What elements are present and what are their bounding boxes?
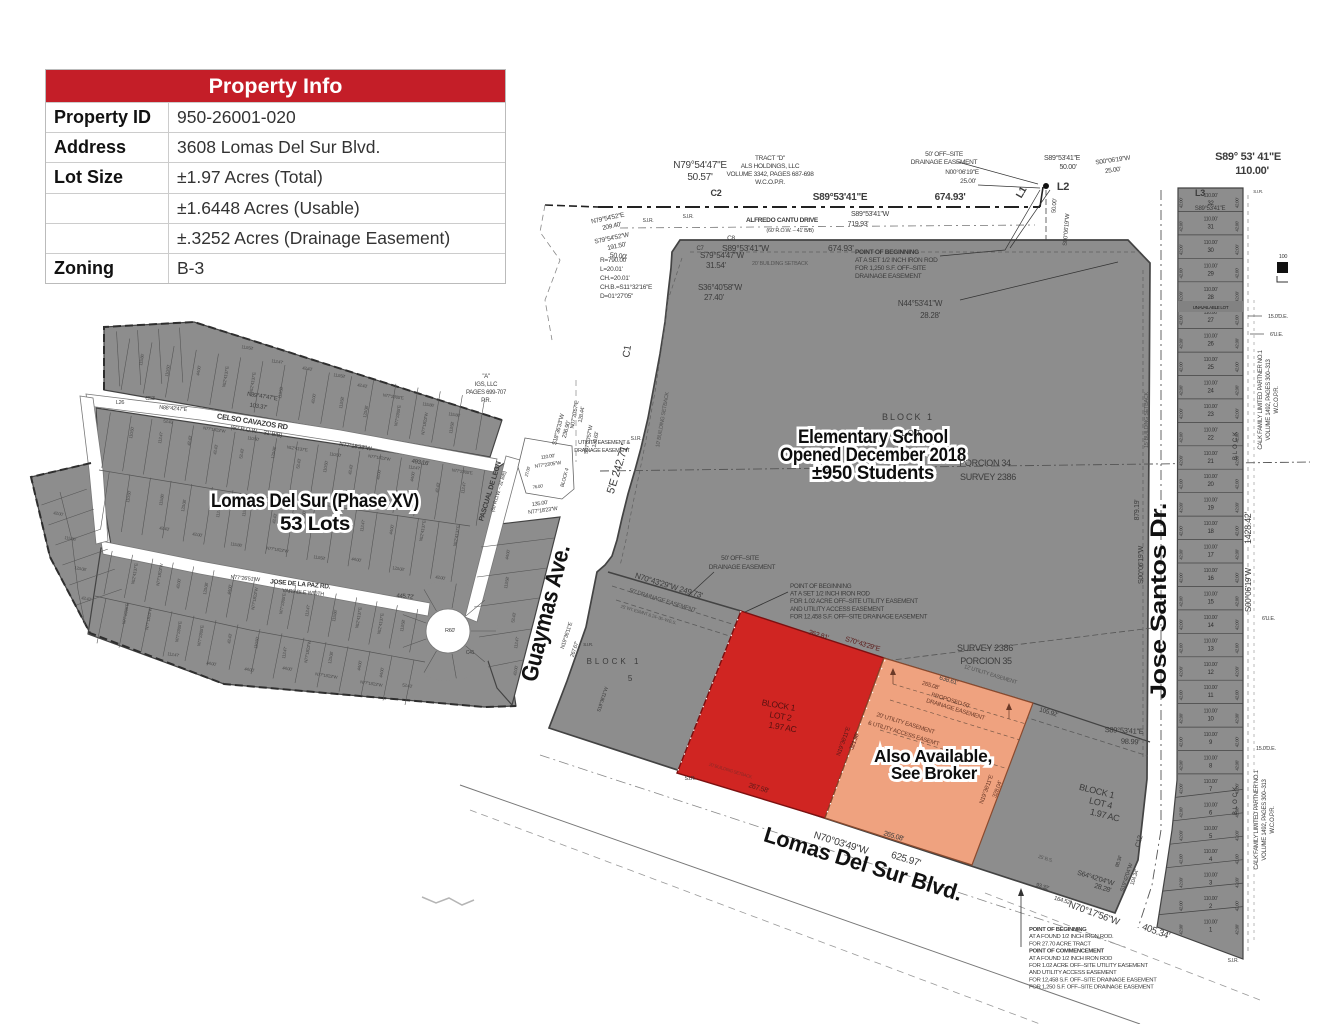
svg-text:24: 24 bbox=[1207, 389, 1214, 395]
svg-text:53 Lots: 53 Lots bbox=[280, 513, 350, 535]
svg-text:N00°06'19"E: N00°06'19"E bbox=[945, 168, 980, 176]
svg-text:Jose Santos Dr.: Jose Santos Dr. bbox=[1146, 503, 1171, 699]
svg-text:BLOCK 1: BLOCK 1 bbox=[587, 657, 642, 666]
svg-text:42.00': 42.00' bbox=[1235, 737, 1240, 748]
svg-text:W.C.O.P.R.: W.C.O.P.R. bbox=[1270, 806, 1276, 834]
svg-text:42.00': 42.00' bbox=[1179, 221, 1184, 232]
svg-text:CALK FAMILY LIMITED PARTNER NO: CALK FAMILY LIMITED PARTNER NO.1 bbox=[1254, 769, 1260, 869]
svg-text:W.C.O.P.R.: W.C.O.P.R. bbox=[755, 179, 785, 186]
svg-text:FOR 12,458 S.F. OFF–SITE DRAIN: FOR 12,458 S.F. OFF–SITE DRAINAGE EASEME… bbox=[790, 613, 928, 620]
svg-text:ALS HOLDINGS, LLC: ALS HOLDINGS, LLC bbox=[741, 163, 800, 170]
svg-text:110.00': 110.00' bbox=[1204, 263, 1218, 269]
svg-text:42.00': 42.00' bbox=[1179, 572, 1184, 583]
svg-text:S89°53'41"E: S89°53'41"E bbox=[1044, 154, 1081, 162]
svg-text:27: 27 bbox=[1207, 318, 1214, 324]
svg-text:42.00': 42.00' bbox=[1235, 197, 1240, 208]
svg-text:TRACT "D": TRACT "D" bbox=[755, 155, 786, 162]
svg-text:S.I.R.: S.I.R. bbox=[1228, 958, 1239, 964]
svg-text:POINT OF BEGINNING: POINT OF BEGINNING bbox=[1029, 927, 1087, 933]
svg-text:23: 23 bbox=[1207, 412, 1214, 418]
svg-text:11: 11 bbox=[1208, 693, 1215, 699]
svg-text:42.00': 42.00' bbox=[1179, 713, 1184, 724]
svg-text:FOR 12,458 S.F. OFF–SITE DRAIN: FOR 12,458 S.F. OFF–SITE DRAINAGE EASEME… bbox=[1029, 977, 1157, 983]
svg-text:110.00': 110.00' bbox=[1204, 568, 1218, 574]
svg-text:110.00': 110.00' bbox=[1204, 451, 1218, 457]
svg-text:17: 17 bbox=[1207, 553, 1214, 559]
svg-text:1428.42': 1428.42' bbox=[1243, 511, 1253, 543]
svg-text:C41: C41 bbox=[466, 650, 475, 656]
svg-text:CH.=20.01': CH.=20.01' bbox=[600, 275, 630, 282]
svg-text:S89°53'41"W: S89°53'41"W bbox=[851, 210, 890, 218]
svg-text:VOLUME 1492, PAGES 300–313: VOLUME 1492, PAGES 300–313 bbox=[1266, 358, 1272, 440]
svg-text:FOR 1.02 ACRE OFF–SITE UTILITY: FOR 1.02 ACRE OFF–SITE UTILITY EASEMENT bbox=[790, 598, 918, 605]
svg-text:DRAINAGE EASEMENT: DRAINAGE EASEMENT bbox=[709, 564, 776, 571]
svg-text:42.00': 42.00' bbox=[1179, 783, 1184, 794]
svg-text:18: 18 bbox=[1207, 529, 1214, 535]
svg-text:110.00': 110.00' bbox=[1204, 709, 1218, 715]
svg-text:VOLUME 3342, PAGES 687-698: VOLUME 3342, PAGES 687-698 bbox=[726, 171, 814, 178]
svg-text:110.00': 110.00' bbox=[1204, 240, 1218, 246]
svg-text:VOLUME 1492, PAGES 300–313: VOLUME 1492, PAGES 300–313 bbox=[1262, 778, 1268, 860]
svg-text:20: 20 bbox=[1207, 482, 1214, 488]
svg-text:29: 29 bbox=[1207, 271, 1214, 277]
svg-text:42.00': 42.00' bbox=[1179, 432, 1184, 443]
svg-text:AND UTILITY ACCESS EASEMENT: AND UTILITY ACCESS EASEMENT bbox=[1029, 970, 1117, 976]
svg-text:42.00': 42.00' bbox=[1235, 408, 1240, 419]
svg-text:16: 16 bbox=[1207, 576, 1214, 582]
svg-text:42.00': 42.00' bbox=[1235, 479, 1240, 490]
svg-text:27.40': 27.40' bbox=[704, 293, 725, 302]
svg-text:42.00': 42.00' bbox=[1235, 502, 1240, 513]
svg-text:42.00': 42.00' bbox=[1179, 877, 1184, 888]
svg-text:AT A SET 1/2 INCH IRON ROD: AT A SET 1/2 INCH IRON ROD bbox=[855, 257, 938, 264]
svg-text:110.00': 110.00' bbox=[1204, 685, 1218, 691]
svg-text:See Broker: See Broker bbox=[891, 763, 977, 783]
svg-text:110.00': 110.00' bbox=[1204, 873, 1218, 879]
svg-text:31: 31 bbox=[1207, 224, 1214, 230]
svg-text:C53: C53 bbox=[145, 396, 154, 402]
svg-text:PAGES 699-707: PAGES 699-707 bbox=[466, 390, 507, 396]
svg-text:13: 13 bbox=[1207, 646, 1214, 652]
svg-text:50' OFF–SITE: 50' OFF–SITE bbox=[925, 151, 964, 158]
svg-text:C2: C2 bbox=[711, 188, 722, 198]
svg-text:FOR 1,250 S.F. OFF–SITE DRAINA: FOR 1,250 S.F. OFF–SITE DRAINAGE EASEMEN… bbox=[1029, 985, 1154, 991]
svg-text:42.00': 42.00' bbox=[1179, 291, 1184, 302]
svg-text:42.00': 42.00' bbox=[1179, 526, 1184, 537]
svg-text:S89°53'41"E: S89°53'41"E bbox=[1195, 206, 1226, 212]
svg-text:L26: L26 bbox=[116, 400, 125, 406]
svg-text:42.00': 42.00' bbox=[1235, 549, 1240, 560]
svg-text:FOR 1.02 ACRE OFF–SITE UTILITY: FOR 1.02 ACRE OFF–SITE UTILITY EASEMENT bbox=[1029, 963, 1148, 969]
svg-text:42.00': 42.00' bbox=[1179, 268, 1184, 279]
svg-text:110.00': 110.00' bbox=[1204, 474, 1218, 480]
svg-text:42.00': 42.00' bbox=[1179, 690, 1184, 701]
svg-text:42.00': 42.00' bbox=[1179, 338, 1184, 349]
svg-text:42.00': 42.00' bbox=[1179, 901, 1184, 912]
svg-text:L=20.01': L=20.01' bbox=[600, 266, 623, 273]
svg-text:±950 Students: ±950 Students bbox=[812, 462, 934, 484]
svg-text:AT A FOUND 1/2 INCH IRON ROD: AT A FOUND 1/2 INCH IRON ROD bbox=[1029, 956, 1112, 962]
svg-text:110.00': 110.00' bbox=[1204, 779, 1218, 785]
svg-text:42.00': 42.00' bbox=[1235, 572, 1240, 583]
svg-text:SURVEY 2386: SURVEY 2386 bbox=[960, 472, 1016, 482]
svg-text:AT A SET 1/2 INCH IRON ROD: AT A SET 1/2 INCH IRON ROD bbox=[790, 591, 870, 598]
svg-text:15: 15 bbox=[1207, 599, 1214, 605]
svg-text:42.00': 42.00' bbox=[1235, 760, 1240, 771]
svg-text:674.93': 674.93' bbox=[828, 243, 854, 253]
svg-text:42.00': 42.00' bbox=[1235, 596, 1240, 607]
svg-text:AND UTILITY ACCESS EASEMENT: AND UTILITY ACCESS EASEMENT bbox=[790, 606, 884, 613]
svg-text:6'U.E.: 6'U.E. bbox=[1270, 332, 1284, 338]
svg-text:879.19': 879.19' bbox=[1134, 500, 1141, 521]
svg-text:110.00': 110.00' bbox=[1204, 732, 1218, 738]
svg-text:50.57': 50.57' bbox=[687, 172, 713, 183]
svg-text:(60' R.O.W. – 41' B/B): (60' R.O.W. – 41' B/B) bbox=[766, 228, 814, 234]
svg-text:110.00': 110.00' bbox=[1204, 521, 1218, 527]
svg-text:CH.B.=S11°32'16"E: CH.B.=S11°32'16"E bbox=[600, 283, 653, 291]
svg-text:42.00': 42.00' bbox=[1179, 737, 1184, 748]
svg-text:S00°06'19"W: S00°06'19"W bbox=[1244, 567, 1253, 612]
svg-text:42.00': 42.00' bbox=[1235, 690, 1240, 701]
svg-text:42.00': 42.00' bbox=[1235, 619, 1240, 630]
svg-text:42.00': 42.00' bbox=[1235, 268, 1240, 279]
svg-text:42.00': 42.00' bbox=[1179, 502, 1184, 513]
svg-text:110.00': 110.00' bbox=[1204, 334, 1218, 340]
svg-text:42.00': 42.00' bbox=[1179, 596, 1184, 607]
svg-text:42.00': 42.00' bbox=[1179, 315, 1184, 326]
svg-text:110.00': 110.00' bbox=[1204, 756, 1218, 762]
svg-text:POINT OF COMMENCEMENT: POINT OF COMMENCEMENT bbox=[1029, 949, 1105, 955]
svg-text:42.00': 42.00' bbox=[1179, 197, 1184, 208]
svg-text:110.00': 110.00' bbox=[1204, 920, 1218, 926]
svg-text:42.00': 42.00' bbox=[1235, 643, 1240, 654]
svg-text:S36°40'58"W: S36°40'58"W bbox=[698, 283, 743, 292]
svg-text:42.00': 42.00' bbox=[1235, 830, 1240, 841]
svg-text:98.99': 98.99' bbox=[1121, 737, 1141, 747]
svg-text:110.00': 110.00' bbox=[1204, 802, 1218, 808]
svg-text:POINT OF BEGINNING: POINT OF BEGINNING bbox=[855, 249, 919, 256]
svg-text:42.00': 42.00' bbox=[1179, 924, 1184, 935]
svg-text:42.00': 42.00' bbox=[1179, 244, 1184, 255]
svg-text:110.00': 110.00' bbox=[1204, 216, 1218, 222]
svg-text:42.00': 42.00' bbox=[1179, 760, 1184, 771]
svg-text:42.00': 42.00' bbox=[1179, 455, 1184, 466]
svg-text:42.00': 42.00' bbox=[1179, 385, 1184, 396]
svg-text:S.I.R.: S.I.R. bbox=[683, 214, 694, 220]
svg-text:110.00': 110.00' bbox=[1204, 193, 1218, 199]
svg-text:110.00': 110.00' bbox=[1235, 165, 1269, 177]
svg-text:110.00': 110.00' bbox=[1204, 662, 1218, 668]
svg-text:110.00': 110.00' bbox=[1204, 357, 1218, 363]
svg-text:110.00': 110.00' bbox=[1204, 427, 1218, 433]
svg-text:42.00': 42.00' bbox=[1235, 362, 1240, 373]
svg-text:50' OFF–SITE: 50' OFF–SITE bbox=[721, 555, 760, 562]
svg-text:42.00': 42.00' bbox=[1235, 385, 1240, 396]
svg-text:110.00': 110.00' bbox=[1204, 287, 1218, 293]
svg-text:BLOCK: BLOCK bbox=[1233, 430, 1239, 460]
svg-text:110.00': 110.00' bbox=[1204, 498, 1218, 504]
svg-text:S.I.R.: S.I.R. bbox=[583, 642, 593, 647]
svg-text:N79°54'47"E: N79°54'47"E bbox=[673, 160, 727, 171]
svg-text:FOR 27.70 ACRE TRACT: FOR 27.70 ACRE TRACT bbox=[1029, 941, 1091, 947]
svg-text:26: 26 bbox=[1207, 342, 1214, 348]
svg-text:42.00': 42.00' bbox=[1235, 666, 1240, 677]
svg-text:110.00': 110.00' bbox=[1204, 591, 1218, 597]
svg-text:D=01°27'05": D=01°27'05" bbox=[600, 292, 634, 300]
svg-text:R60': R60' bbox=[445, 628, 455, 634]
svg-text:42.00': 42.00' bbox=[1179, 479, 1184, 490]
svg-text:6'U.E.: 6'U.E. bbox=[1262, 616, 1276, 622]
svg-text:110.00': 110.00' bbox=[1204, 381, 1218, 387]
svg-text:22: 22 bbox=[1207, 435, 1214, 441]
svg-text:719.93': 719.93' bbox=[848, 221, 869, 228]
svg-text:42.00': 42.00' bbox=[1235, 924, 1240, 935]
svg-text:L3: L3 bbox=[1195, 188, 1205, 198]
svg-text:110.00': 110.00' bbox=[1204, 896, 1218, 902]
svg-text:42.00': 42.00' bbox=[1235, 291, 1240, 302]
svg-text:110.00': 110.00' bbox=[1204, 615, 1218, 621]
svg-text:AT A FOUND 1/2 INCH IRON ROD.: AT A FOUND 1/2 INCH IRON ROD. bbox=[1029, 934, 1114, 940]
svg-text:W.C.O.P.R.: W.C.O.P.R. bbox=[1274, 386, 1280, 414]
svg-text:42.00': 42.00' bbox=[1179, 362, 1184, 373]
svg-text:42.00': 42.00' bbox=[1235, 854, 1240, 865]
svg-text:110.00': 110.00' bbox=[1204, 404, 1218, 410]
svg-text:28: 28 bbox=[1207, 295, 1214, 301]
svg-text:42.00': 42.00' bbox=[1235, 526, 1240, 537]
svg-text:30: 30 bbox=[1207, 248, 1214, 254]
svg-text:DRAINAGE EASEMENT: DRAINAGE EASEMENT bbox=[855, 273, 922, 280]
svg-text:110.00': 110.00' bbox=[1204, 638, 1218, 644]
svg-text:C8: C8 bbox=[727, 235, 735, 242]
svg-text:20' BUILDING SETBACK: 20' BUILDING SETBACK bbox=[752, 261, 809, 267]
svg-text:42.00': 42.00' bbox=[1179, 619, 1184, 630]
svg-text:42.00': 42.00' bbox=[1179, 854, 1184, 865]
svg-text:15.0'D.E.: 15.0'D.E. bbox=[1256, 746, 1277, 752]
svg-text:42.00': 42.00' bbox=[1179, 666, 1184, 677]
svg-text:UNAVAILABLE LOT: UNAVAILABLE LOT bbox=[1193, 305, 1229, 310]
svg-text:19: 19 bbox=[1207, 506, 1214, 512]
svg-text:FOR 1,250 S.F. OFF–SITE: FOR 1,250 S.F. OFF–SITE bbox=[855, 265, 927, 272]
svg-text:25: 25 bbox=[1207, 365, 1214, 371]
svg-text:42.00': 42.00' bbox=[1179, 643, 1184, 654]
svg-text:110.00': 110.00' bbox=[1204, 826, 1218, 832]
svg-text:N44°53'41"W: N44°53'41"W bbox=[898, 299, 943, 308]
svg-text:42.00': 42.00' bbox=[1235, 901, 1240, 912]
svg-text:S79°54'47"W: S79°54'47"W bbox=[700, 251, 745, 260]
svg-text:L2: L2 bbox=[1057, 181, 1069, 193]
svg-text:100: 100 bbox=[1279, 254, 1288, 260]
svg-text:25.00': 25.00' bbox=[960, 178, 976, 185]
svg-text:"A": "A" bbox=[482, 374, 490, 380]
svg-text:S89° 53' 41"E: S89° 53' 41"E bbox=[1215, 151, 1281, 163]
svg-text:S.I.R.: S.I.R. bbox=[643, 218, 654, 224]
svg-text:15' BUILDING SETBACK: 15' BUILDING SETBACK bbox=[1144, 391, 1150, 448]
svg-text:P.R.: P.R. bbox=[481, 398, 491, 404]
svg-text:110.00': 110.00' bbox=[1204, 545, 1218, 551]
svg-text:50.00': 50.00' bbox=[1059, 164, 1076, 171]
svg-text:28.28': 28.28' bbox=[920, 311, 941, 320]
svg-text:S.I.R.: S.I.R. bbox=[1253, 189, 1263, 194]
svg-text:BLOCK: BLOCK bbox=[1233, 785, 1239, 815]
svg-text:42.00': 42.00' bbox=[1179, 830, 1184, 841]
svg-text:50.00': 50.00' bbox=[1051, 198, 1058, 213]
svg-text:42.00': 42.00' bbox=[1235, 244, 1240, 255]
svg-text:BLOCK 1: BLOCK 1 bbox=[882, 412, 934, 422]
svg-text:IGS, LLC: IGS, LLC bbox=[475, 382, 498, 388]
svg-text:42.00': 42.00' bbox=[1235, 713, 1240, 724]
svg-text:PORCION 34: PORCION 34 bbox=[959, 458, 1011, 468]
svg-text:42.00': 42.00' bbox=[1235, 877, 1240, 888]
svg-text:674.93': 674.93' bbox=[935, 192, 966, 203]
svg-text:42.00': 42.00' bbox=[1179, 807, 1184, 818]
svg-text:42.00': 42.00' bbox=[1235, 315, 1240, 326]
svg-text:LOT: LOT bbox=[901, 429, 923, 438]
svg-text:S00°06'19"W: S00°06'19"W bbox=[1137, 545, 1145, 584]
svg-text:42.00': 42.00' bbox=[1235, 338, 1240, 349]
svg-text:Lomas Del Sur (Phase XV): Lomas Del Sur (Phase XV) bbox=[211, 490, 419, 512]
svg-text:42.00': 42.00' bbox=[1179, 549, 1184, 560]
svg-text:POINT OF BEGINNING: POINT OF BEGINNING bbox=[790, 583, 852, 590]
svg-text:R=790.00': R=790.00' bbox=[600, 257, 627, 264]
svg-text:10: 10 bbox=[1207, 717, 1214, 723]
svg-text:S.I.R.: S.I.R. bbox=[685, 776, 696, 782]
svg-text:31.54': 31.54' bbox=[706, 261, 727, 270]
svg-text:ALFREDO CANTU DRIVE: ALFREDO CANTU DRIVE bbox=[746, 217, 819, 224]
svg-text:110.00': 110.00' bbox=[1204, 849, 1218, 855]
svg-text:S89°53'41"E: S89°53'41"E bbox=[813, 192, 868, 203]
svg-text:14: 14 bbox=[1207, 623, 1214, 629]
svg-text:SURVEY 2386: SURVEY 2386 bbox=[957, 643, 1013, 653]
svg-text:12: 12 bbox=[1207, 670, 1214, 676]
svg-text:42.00': 42.00' bbox=[1235, 221, 1240, 232]
svg-text:CALK FAMILY LIMITED PARTNER NO: CALK FAMILY LIMITED PARTNER NO.1 bbox=[1258, 349, 1264, 449]
svg-text:21: 21 bbox=[1207, 459, 1214, 465]
svg-text:15.0'D.E.: 15.0'D.E. bbox=[1268, 314, 1289, 320]
svg-text:S.I.R.: S.I.R. bbox=[631, 436, 642, 442]
svg-text:42.00': 42.00' bbox=[1179, 408, 1184, 419]
